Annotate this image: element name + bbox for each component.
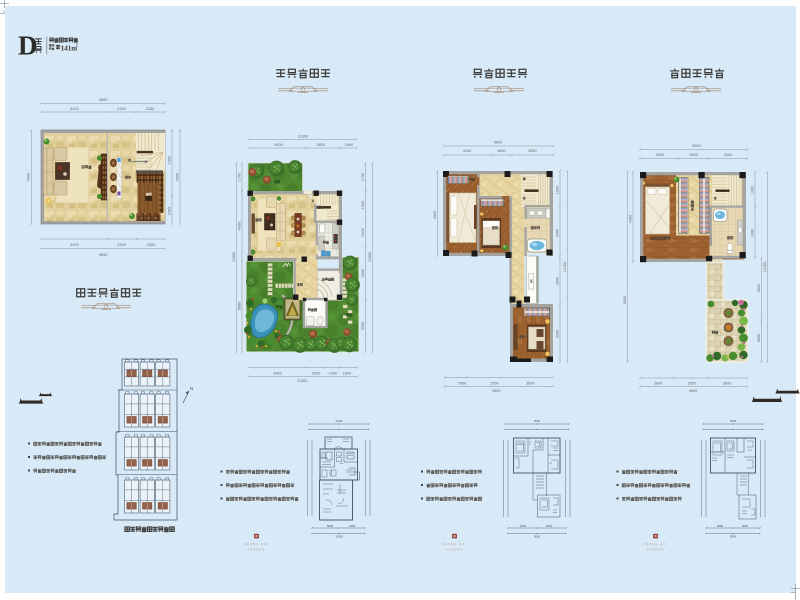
svg-text:4150: 4150 <box>463 149 471 153</box>
svg-text:3000: 3000 <box>654 381 662 385</box>
svg-text:2400: 2400 <box>361 228 365 236</box>
svg-text:ZHONG HUI: ZHONG HUI <box>244 542 268 546</box>
svg-text:GARDEN: GARDEN <box>446 548 464 552</box>
svg-text:4300: 4300 <box>238 222 242 230</box>
svg-text:4300: 4300 <box>27 173 31 181</box>
svg-text:5900: 5900 <box>274 143 282 147</box>
svg-text:2150: 2150 <box>117 107 125 111</box>
svg-text:2050: 2050 <box>458 381 466 385</box>
svg-text:9500: 9500 <box>689 389 697 393</box>
svg-text:11800: 11800 <box>368 252 372 262</box>
svg-text:3000: 3000 <box>361 322 365 330</box>
svg-text:5900: 5900 <box>327 524 334 528</box>
svg-text:1900: 1900 <box>556 186 560 194</box>
svg-text:1400: 1400 <box>329 371 337 375</box>
svg-text:3600: 3600 <box>316 143 324 147</box>
svg-text:3400: 3400 <box>349 524 356 528</box>
svg-text:1800: 1800 <box>345 143 353 147</box>
svg-text:5900: 5900 <box>273 371 281 375</box>
svg-text:2950: 2950 <box>490 381 498 385</box>
svg-text:9500: 9500 <box>692 144 700 148</box>
svg-text:2800: 2800 <box>556 277 560 285</box>
svg-text:9500: 9500 <box>534 535 541 539</box>
svg-text:6860: 6860 <box>238 302 242 310</box>
svg-text:11300: 11300 <box>335 535 343 539</box>
svg-text:5800: 5800 <box>623 296 627 304</box>
svg-text:GARDEN: GARDEN <box>248 548 266 552</box>
svg-text:3600: 3600 <box>546 524 553 528</box>
svg-text:ZHONG HUI: ZHONG HUI <box>643 542 667 546</box>
svg-text:9600: 9600 <box>99 98 107 102</box>
svg-text:3600: 3600 <box>757 334 761 342</box>
svg-text:4300: 4300 <box>629 215 633 223</box>
svg-text:1900: 1900 <box>361 201 365 209</box>
svg-text:2500: 2500 <box>688 381 696 385</box>
svg-text:2400: 2400 <box>556 229 560 237</box>
svg-text:4300: 4300 <box>433 211 437 219</box>
svg-text:11800: 11800 <box>232 252 236 262</box>
svg-text:5100: 5100 <box>70 107 78 111</box>
svg-text:2800: 2800 <box>757 284 761 292</box>
svg-text:D: D <box>18 31 38 61</box>
svg-text:2050: 2050 <box>520 524 527 528</box>
svg-text:2500: 2500 <box>689 153 697 157</box>
svg-text:1700: 1700 <box>361 173 365 181</box>
svg-text:1900: 1900 <box>751 186 755 194</box>
svg-text:1800: 1800 <box>343 371 351 375</box>
svg-text:ZHONG HUI: ZHONG HUI <box>442 542 466 546</box>
svg-text:10100: 10100 <box>563 262 567 273</box>
svg-text:3600: 3600 <box>723 381 731 385</box>
svg-text:5100: 5100 <box>70 243 78 247</box>
svg-text:9500: 9500 <box>730 535 737 539</box>
svg-text:9500: 9500 <box>534 419 541 423</box>
svg-text:1800: 1800 <box>497 149 505 153</box>
svg-text:2: 2 <box>76 42 78 47</box>
svg-text:1900: 1900 <box>168 156 172 164</box>
svg-text:9500: 9500 <box>494 141 502 145</box>
svg-text:3600: 3600 <box>742 524 749 528</box>
svg-text:2400: 2400 <box>751 229 755 237</box>
svg-text:10100: 10100 <box>763 262 767 273</box>
svg-text:2600: 2600 <box>361 269 365 277</box>
svg-text:2200: 2200 <box>117 243 125 247</box>
svg-text:1700: 1700 <box>238 173 242 181</box>
svg-text:2300: 2300 <box>147 243 155 247</box>
svg-text:3450: 3450 <box>656 153 664 157</box>
svg-text:11300: 11300 <box>298 134 308 138</box>
svg-text:2200: 2200 <box>312 371 320 375</box>
svg-text:9500: 9500 <box>730 419 737 423</box>
svg-text:3000: 3000 <box>556 330 560 338</box>
svg-text:2250: 2250 <box>146 107 154 111</box>
svg-text:3000: 3000 <box>717 524 724 528</box>
svg-text:9600: 9600 <box>99 253 107 257</box>
svg-text:3600: 3600 <box>526 381 534 385</box>
svg-text:4300: 4300 <box>176 173 180 181</box>
svg-text:N: N <box>190 386 193 391</box>
svg-text:GARDEN: GARDEN <box>647 548 665 552</box>
svg-text:3550: 3550 <box>528 149 536 153</box>
svg-text:11300: 11300 <box>297 379 307 383</box>
svg-text:3050: 3050 <box>724 153 732 157</box>
svg-text:2400: 2400 <box>168 207 172 215</box>
svg-text:11300: 11300 <box>335 419 343 423</box>
svg-text:9500: 9500 <box>492 389 500 393</box>
